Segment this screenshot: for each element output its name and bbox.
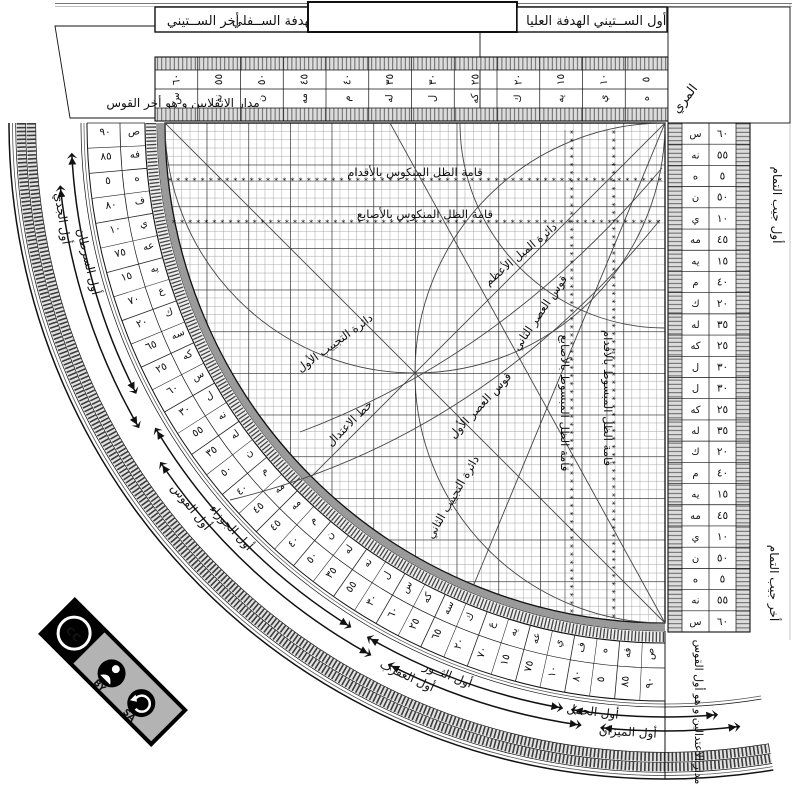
ring-numeral: ٣٠ <box>177 403 193 419</box>
right-ruler-abjad: ي <box>692 532 700 543</box>
ring-cell-divider <box>590 639 598 697</box>
right-ruler-abjad: ك <box>691 447 699 458</box>
right-ruler-abjad: ه <box>693 172 698 183</box>
ring-numeral: ١٥ <box>498 653 513 667</box>
right-ruler-abjad: له <box>691 320 699 331</box>
right-ruler-numeral: ٥٠ <box>717 552 728 564</box>
ring-numeral: ٤٥ <box>250 500 266 516</box>
top-ruler-abjad: ن <box>256 95 267 102</box>
right-ruler-numeral: ٢٠ <box>717 446 728 458</box>
right-ruler-abjad: كه <box>690 405 700 416</box>
sine-quadrant-diagram: ٩٠ص٨٥فه٥ه٨٠ف١٠ي٧٥عه١٥يه٧٠ع٢٠ك٦٥سه٢٥كه٦٠س… <box>0 0 794 794</box>
ring-abjad: مه <box>288 497 303 512</box>
right-ruler-numeral: ٥ <box>720 573 726 585</box>
ring-abjad: ي <box>139 218 149 230</box>
ring-numeral: ٣٥ <box>204 444 220 460</box>
right-ruler-abjad: س <box>689 617 701 628</box>
ring-numeral: ٥٠ <box>304 550 320 566</box>
ring-numeral: ٦٠ <box>165 382 181 398</box>
right-cosine-ruler: ٦٠س٥٥نه٥ه٥٠ن١٠ي٤٥مه١٥يه٤٠م٢٠ك٣٥له٢٥كه٣٠ل… <box>668 123 750 632</box>
inverted-shadow-digits-label: قامة الظل المنكوس بالأصابع <box>357 207 493 222</box>
ring-numeral: ٧٠ <box>126 293 141 308</box>
first-sixty-label: أول الســتيني <box>594 12 667 29</box>
top-ruler-numeral: ٤٥ <box>299 74 311 85</box>
top-ruler-numeral: ١٠ <box>598 74 610 85</box>
right-ruler-numeral: ٣٠ <box>717 383 728 395</box>
ring-numeral: ٨٥ <box>619 676 632 688</box>
top-ruler-abjad: مه <box>299 93 310 104</box>
ring-cell-divider <box>565 635 575 692</box>
top-ruler-abjad: س <box>171 92 182 104</box>
quadrant-svg: ٩٠ص٨٥فه٥ه٨٠ف١٠ي٧٥عه١٥يه٧٠ع٢٠ك٦٥سه٢٥كه٦٠س… <box>0 0 794 794</box>
right-ruler-abjad: س <box>689 129 701 140</box>
ring-abjad: له <box>229 428 242 442</box>
ring-cell-divider <box>615 641 620 699</box>
inverted-shadow-feet-label: قامة الظل المنكوس بالأقدام <box>347 165 482 180</box>
ring-numeral: ٤٥ <box>267 517 283 533</box>
ring-numeral: ٨٥ <box>100 150 112 163</box>
ring-numeral: ٤٠ <box>285 534 301 550</box>
ring-abjad: ن <box>324 529 337 542</box>
ring-abjad: ه <box>134 173 140 185</box>
ring-numeral: ٣٠ <box>364 592 380 608</box>
right-ruler-abjad: ل <box>692 384 699 395</box>
right-ruler-numeral: ٣٥ <box>717 319 728 331</box>
right-ruler-numeral: ٢٥ <box>717 404 728 416</box>
top-ruler-numeral: ٥٠ <box>256 74 268 85</box>
ring-abjad: يه <box>149 263 160 276</box>
sight-notch <box>308 2 517 32</box>
ring-abjad: عه <box>142 240 156 253</box>
ring-numeral: ٧٠ <box>475 645 490 660</box>
ring-abjad: كه <box>181 348 195 362</box>
ring-numeral: ٨٠ <box>105 198 118 212</box>
right-ruler-numeral: ٦٠ <box>717 128 728 140</box>
top-ruler-numeral: ١٥ <box>555 74 567 85</box>
solstice-box: مدار الانقلابين و هو أخر القوس <box>55 26 480 118</box>
ring-abjad: نه <box>216 409 229 423</box>
right-ruler-abjad: م <box>692 468 698 479</box>
right-ruler-numeral: ٥٠ <box>717 192 728 204</box>
ring-abjad: ه <box>599 647 611 653</box>
right-ruler-abjad: كه <box>690 341 700 352</box>
ring-abjad: ع <box>157 285 166 297</box>
ring-numeral: ١٠ <box>109 222 122 236</box>
right-ruler-numeral: ١٥ <box>717 489 728 501</box>
right-ruler-numeral: ١٥ <box>717 255 728 267</box>
right-ruler-numeral: ٢٥ <box>717 340 728 352</box>
right-ruler-numeral: ٤٠ <box>717 467 728 479</box>
ring-numeral: ٢٥ <box>154 360 169 376</box>
ring-abjad: ل <box>204 390 216 403</box>
ring-abjad: ص <box>128 126 140 137</box>
top-ruler-numeral: ٦٠ <box>170 74 182 85</box>
right-ruler-numeral: ٥٥ <box>717 595 728 607</box>
ring-numeral: ١٠ <box>546 665 560 678</box>
ring-abjad: فه <box>622 647 634 658</box>
top-ruler-abjad: له <box>385 94 396 102</box>
ring-abjad: ف <box>134 195 146 207</box>
ring-abjad: م <box>307 515 319 527</box>
ring-abjad: ك <box>163 307 175 320</box>
ring-abjad: ف <box>576 641 588 653</box>
right-ruler-numeral: ٦٠ <box>717 616 728 628</box>
right-ruler-numeral: ٤٥ <box>717 234 728 246</box>
right-ruler-numeral: ٣٥ <box>717 425 728 437</box>
zodiac-label: أول الجدي <box>51 191 75 245</box>
top-ruler-numeral: ٣٥ <box>384 74 396 85</box>
zodiac-label: أول السرطان <box>73 227 104 297</box>
first-cosine-label: أول جيب التمام <box>769 167 785 244</box>
ring-cell-divider <box>640 643 643 701</box>
top-ruler-abjad: يه <box>556 94 567 102</box>
top-ruler-abjad: ه <box>641 96 652 101</box>
right-ruler-abjad: مه <box>690 511 701 522</box>
right-ruler-numeral: ٣٠ <box>717 361 728 373</box>
ring-abjad: ن <box>243 447 256 460</box>
right-ruler-abjad: ه <box>693 574 698 585</box>
right-ruler-numeral: ٤٠ <box>717 277 728 289</box>
right-ruler-abjad: ن <box>692 553 699 564</box>
ring-numeral: ٧٥ <box>522 659 536 673</box>
right-ruler-abjad: ل <box>692 362 699 373</box>
last-cosine-label: أخر جيب التمام <box>766 545 782 621</box>
ring-abjad: ص <box>645 648 656 660</box>
ring-abjad: س <box>400 579 416 595</box>
top-ruler-abjad: كه <box>470 93 481 103</box>
ring-abjad: كه <box>421 591 435 605</box>
zodiac-label: أول الجوزاء <box>206 501 257 554</box>
ring-abjad: ع <box>486 620 498 629</box>
license-badge: cc BY SA <box>40 600 185 745</box>
lower-sight-label: الهدفة الســفلي <box>232 14 318 29</box>
right-ruler-abjad: نه <box>691 150 699 161</box>
ring-numeral: ٣٥ <box>323 565 339 581</box>
right-ruler-numeral: ١٠ <box>717 213 728 225</box>
ring-numeral: ٥ <box>595 676 608 683</box>
right-ruler-abjad: له <box>691 426 699 437</box>
ring-numeral: ٥٥ <box>190 423 206 439</box>
ring-numeral: ١٥ <box>119 269 133 284</box>
ring-abjad: ي <box>553 638 565 648</box>
right-ruler-numeral: ٢٠ <box>717 298 728 310</box>
ring-numeral: ٦٥ <box>429 627 445 642</box>
ring-abjad: ل <box>381 570 394 582</box>
top-ruler-numeral: ٤٠ <box>341 74 353 85</box>
ring-abjad: ك <box>464 611 477 623</box>
top-ruler-abjad: ي <box>598 94 609 102</box>
top-ruler-numeral: ٥٥ <box>213 74 225 85</box>
top-ruler-abjad: ك <box>513 94 524 102</box>
right-ruler-abjad: ك <box>691 299 699 310</box>
top-ruler-numeral: ٥ <box>641 77 653 83</box>
ring-numeral: ٨٠ <box>570 670 584 683</box>
equinox-orbit-label: مدار الاعتدالين و هو أول القوس <box>692 640 706 785</box>
last-sixty-label: أخر الســتيني <box>167 12 239 29</box>
ring-numeral: ٧٥ <box>113 246 127 260</box>
ring-abjad: له <box>342 543 356 556</box>
ring-abjad: فه <box>130 149 141 161</box>
right-ruler-abjad: ن <box>692 193 699 204</box>
apex-corner: المري <box>668 7 790 123</box>
extended-shadow-feet-label: قامة الظل المبسوط بالأقدام <box>600 330 615 466</box>
ring-numeral: ٩٠ <box>644 677 656 689</box>
right-ruler-numeral: ٥ <box>720 171 726 183</box>
right-ruler-numeral: ٤٥ <box>717 510 728 522</box>
upper-sight-label: الهدفة العليا <box>526 14 590 29</box>
sight-plates: أخر الســتيني الهدفة الســفلي الهدفة الع… <box>155 2 667 32</box>
right-ruler-numeral: ٥٥ <box>717 149 728 161</box>
zodiac-label: أول الحمل <box>566 700 620 722</box>
top-ruler-abjad: نه <box>214 94 225 102</box>
top-ruler-abjad: م <box>342 95 353 101</box>
sine-grid: * * * * * * * * * * * * * * * * * * * * … <box>165 123 665 623</box>
ring-numeral: ٥٠ <box>218 463 234 479</box>
ring-numeral: ٦٠ <box>385 605 401 621</box>
extended-shadow-digits-label: قامة الظل المبسوط بالأصابع <box>557 335 572 472</box>
ring-numeral: ٩٠ <box>99 126 111 138</box>
ring-abjad: عه <box>530 631 543 645</box>
ring-abjad: نه <box>361 557 375 570</box>
top-sexagesimal-ruler: ٥ه١٠ي١٥يه٢٠ك٢٥كه٣٠ل٣٥له٤٠م٤٥مه٥٠ن٥٥نه٦٠س <box>155 57 668 121</box>
ring-abjad: يه <box>508 626 521 637</box>
ring-abjad: س <box>190 368 206 384</box>
right-ruler-abjad: مه <box>690 235 701 246</box>
zodiac-label: أول الميزان <box>598 722 657 742</box>
ring-numeral: ٢٠ <box>135 316 150 331</box>
ring-numeral: ٥ <box>105 175 112 188</box>
ring-numeral: ٢٠ <box>452 636 467 651</box>
top-ruler-numeral: ٢٥ <box>470 74 482 85</box>
right-ruler-abjad: نه <box>691 596 699 607</box>
top-ruler-numeral: ٢٠ <box>512 74 524 85</box>
top-ruler-numeral: ٣٠ <box>427 74 439 85</box>
ring-numeral: ٦٥ <box>144 338 159 354</box>
ring-abjad: سه <box>169 327 186 343</box>
right-ruler-abjad: ي <box>692 214 700 225</box>
right-ruler-abjad: يه <box>691 256 699 267</box>
ring-cell-divider <box>88 146 146 149</box>
ring-numeral: ٥٥ <box>343 579 359 595</box>
right-ruler-abjad: م <box>692 278 698 289</box>
ring-abjad: سه <box>441 599 457 616</box>
right-ruler-numeral: ١٠ <box>717 531 728 543</box>
top-ruler-abjad: ل <box>427 95 438 102</box>
right-ruler-abjad: يه <box>691 490 699 501</box>
ring-abjad: م <box>258 465 270 477</box>
ring-numeral: ٢٥ <box>407 616 423 631</box>
